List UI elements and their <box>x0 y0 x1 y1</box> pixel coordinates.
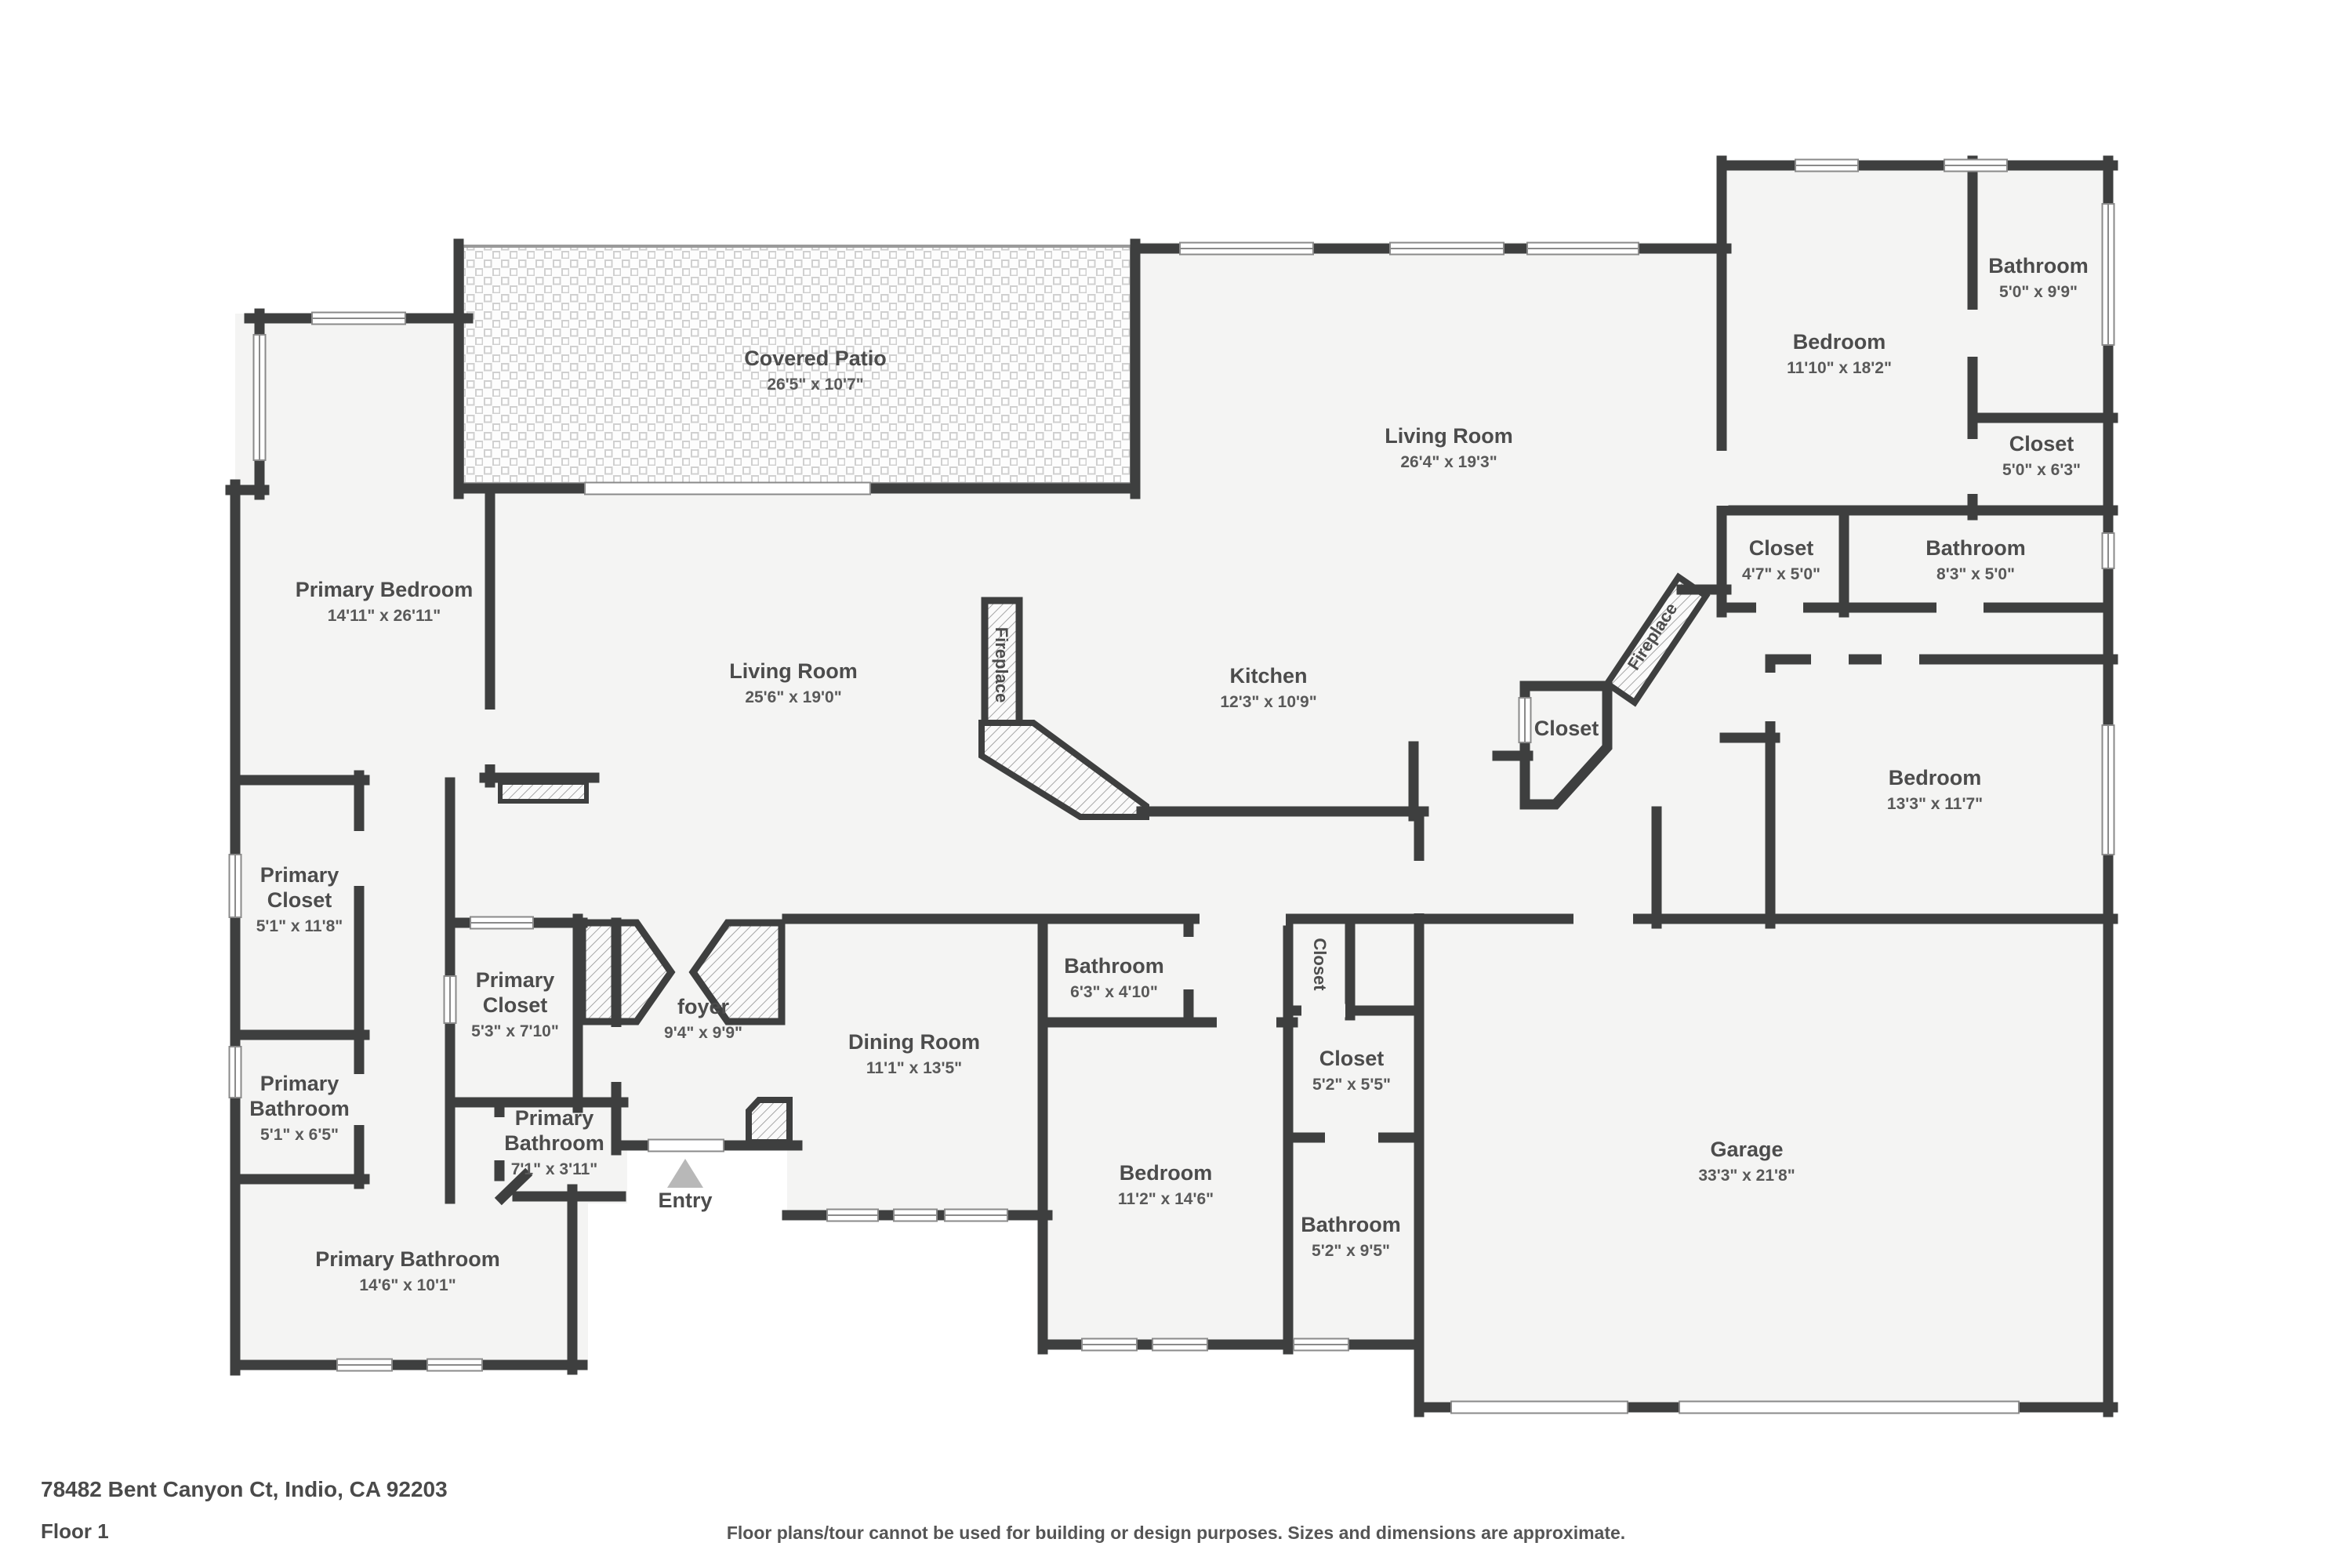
garage-door-opening <box>1679 1402 2019 1414</box>
garage-door-opening <box>1451 1402 1628 1414</box>
patio-slider-opening <box>585 483 870 495</box>
address-text: 78482 Bent Canyon Ct, Indio, CA 92203 <box>41 1477 448 1502</box>
entry-corner-pier <box>749 1100 789 1142</box>
bedroom-door-hatch <box>500 782 586 801</box>
floorplan-drawing <box>0 0 2352 1568</box>
disclaimer-text: Floor plans/tour cannot be used for buil… <box>0 1523 2352 1544</box>
covered-patio-area <box>463 246 1131 484</box>
entry-door-opening <box>648 1140 724 1152</box>
kitchen-fireplace <box>985 601 1019 731</box>
floorplan-canvas: Covered Patio26'5" x 10'7"Primary Bedroo… <box>0 0 2352 1568</box>
entry-direction-icon <box>667 1159 703 1188</box>
